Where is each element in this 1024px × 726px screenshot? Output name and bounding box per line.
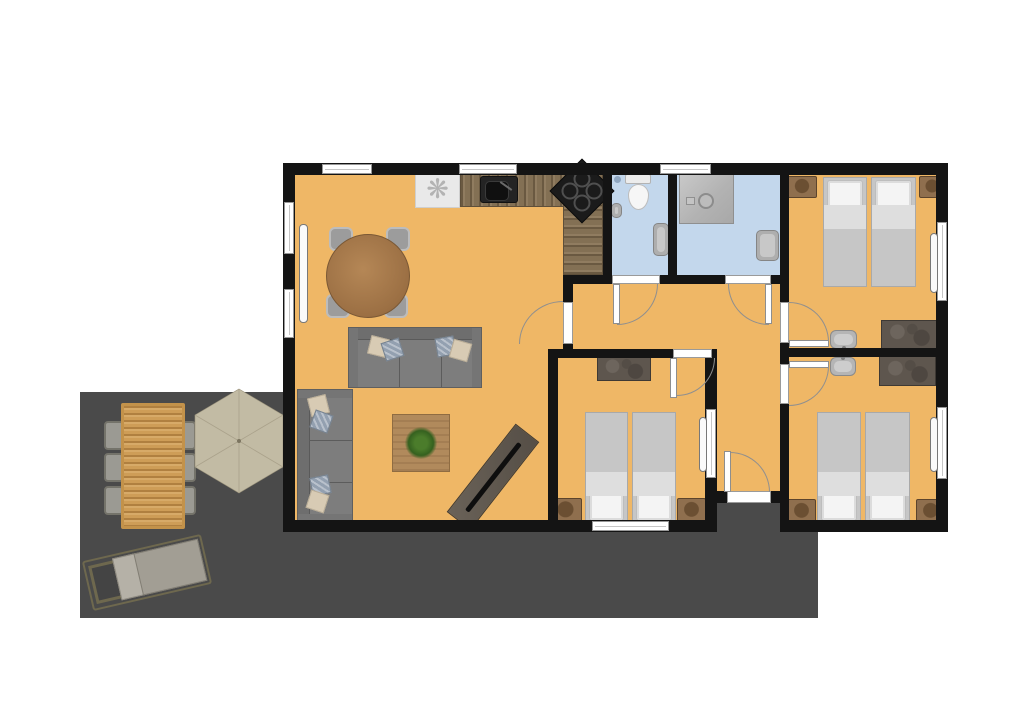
basin-bowl [657, 227, 665, 252]
door-bedroom2 [673, 349, 712, 358]
fan-unit-icon: ❋ [415, 172, 460, 208]
radiator [930, 417, 938, 472]
bed-pillow [876, 181, 911, 207]
washbasin [653, 223, 669, 256]
sofa-back [349, 328, 481, 340]
window [459, 164, 517, 174]
radiator [299, 224, 308, 323]
nightstand [787, 176, 817, 198]
bed-pillow [870, 494, 905, 520]
door-leaf [765, 284, 772, 324]
window [322, 164, 372, 174]
exterior-wall-top [283, 163, 948, 175]
outdoor-dining-table [121, 403, 185, 529]
floor-plan-canvas: ❋ [0, 0, 1024, 726]
twin-bed [817, 412, 861, 524]
lounger-cushion [133, 539, 207, 596]
bed-sheet [633, 472, 675, 496]
washbasin [756, 230, 779, 261]
door-leaf [670, 358, 677, 398]
round-dining-table [326, 234, 410, 318]
wall-corridor-right [780, 404, 789, 532]
window [660, 164, 711, 174]
toilet-tank [625, 174, 651, 184]
door-bedroom1 [780, 302, 789, 343]
twin-bed [865, 412, 910, 524]
wall-corridor-right [780, 163, 789, 302]
sink-bowl [834, 361, 852, 372]
door-bedroom3 [780, 364, 789, 404]
hand-basin [611, 203, 622, 218]
twin-bed [632, 412, 676, 524]
entrance-door [727, 491, 771, 503]
wall-bedroom2-top [548, 349, 673, 358]
wall-bedroom1-3-divider [787, 348, 948, 357]
fan-glyph: ❋ [426, 174, 449, 205]
dresser [597, 356, 651, 381]
door-leaf [613, 284, 620, 324]
sofa-arm [472, 328, 481, 387]
radiator [699, 417, 707, 472]
bed-pillow [590, 494, 623, 520]
parasol-icon [191, 388, 287, 494]
bed-sheet [866, 472, 909, 496]
shower [679, 172, 734, 224]
door-leaf [724, 451, 731, 492]
cushion-seam [309, 440, 352, 441]
wall-bathroom-divider [668, 170, 677, 280]
door-leaf [789, 340, 829, 347]
toilet-brush-icon [614, 176, 621, 183]
twin-bed [585, 412, 628, 524]
bed-sheet [586, 472, 627, 496]
radiator [930, 233, 938, 293]
dresser [881, 320, 938, 349]
bedroom-sink [830, 357, 856, 376]
door-bathroom2 [725, 275, 771, 284]
window [284, 202, 294, 254]
basin-bowl [760, 234, 775, 257]
exterior-wall-bottom [780, 520, 948, 532]
bed-sheet [818, 472, 860, 496]
door-bathroom1 [612, 275, 660, 284]
dresser [879, 356, 936, 386]
bed-pillow [637, 494, 671, 520]
basin-bowl [615, 207, 618, 214]
wall-living-hall [563, 278, 573, 302]
bed-pillow [822, 494, 856, 520]
door-leaf [789, 361, 829, 368]
door-living-hall [563, 302, 573, 344]
twin-bed [871, 177, 916, 287]
plant-icon [405, 427, 437, 459]
window [592, 521, 669, 531]
sofa-arm [349, 328, 358, 387]
window [937, 222, 947, 301]
shower-head-icon [698, 193, 714, 209]
twin-bed [823, 177, 867, 287]
bed-sheet [872, 205, 915, 229]
sink-bowl [834, 334, 853, 345]
shower-control [686, 197, 695, 205]
window [706, 409, 716, 478]
window [937, 407, 947, 479]
wall-bedroom2-left [548, 349, 558, 532]
wall-bathroom1-left [603, 170, 612, 280]
bed-pillow [828, 181, 862, 207]
bed-sheet [824, 205, 866, 229]
bedroom-sink [830, 330, 857, 349]
window [284, 289, 294, 338]
kitchen-sink [480, 176, 518, 203]
